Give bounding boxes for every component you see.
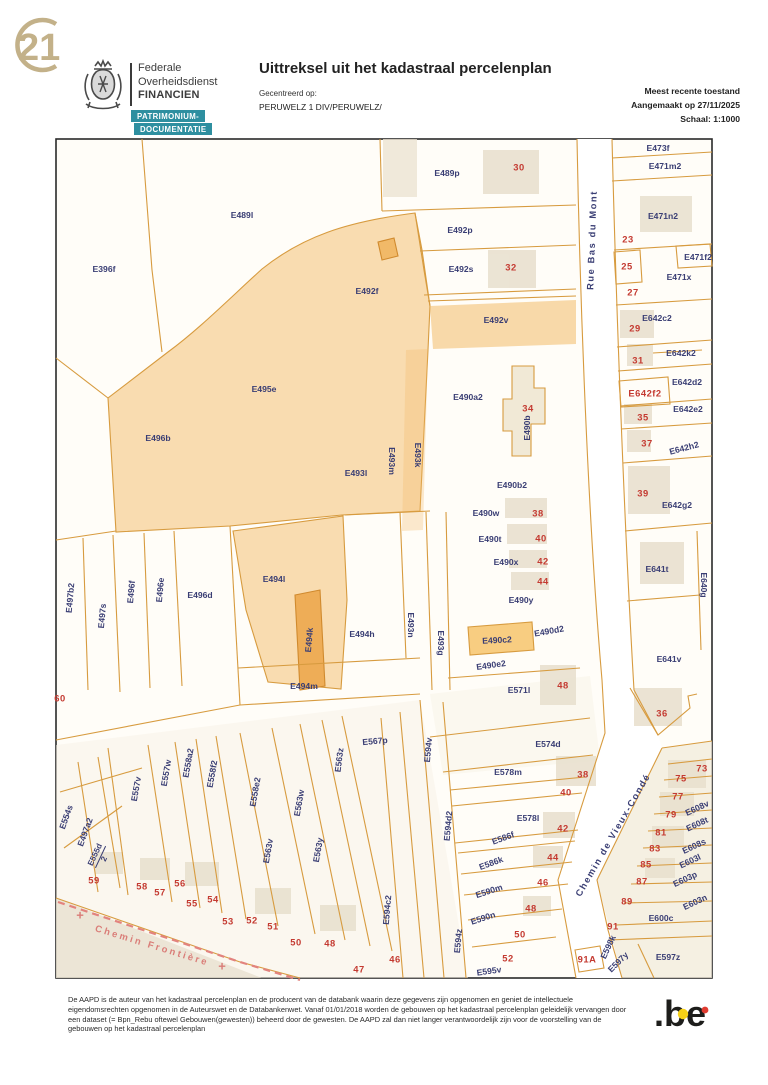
dot-be-logo: .be (652, 990, 722, 1040)
be-yellow-counter (678, 1009, 688, 1019)
be-red-counter (702, 1007, 709, 1014)
cadastral-extract-page: { "header": { "corner_logo_text": "21", … (0, 0, 768, 1085)
aapd-disclaimer: De AAPD is de auteur van het kadastraal … (68, 995, 628, 1034)
cadastral-map-canvas (0, 0, 768, 1085)
